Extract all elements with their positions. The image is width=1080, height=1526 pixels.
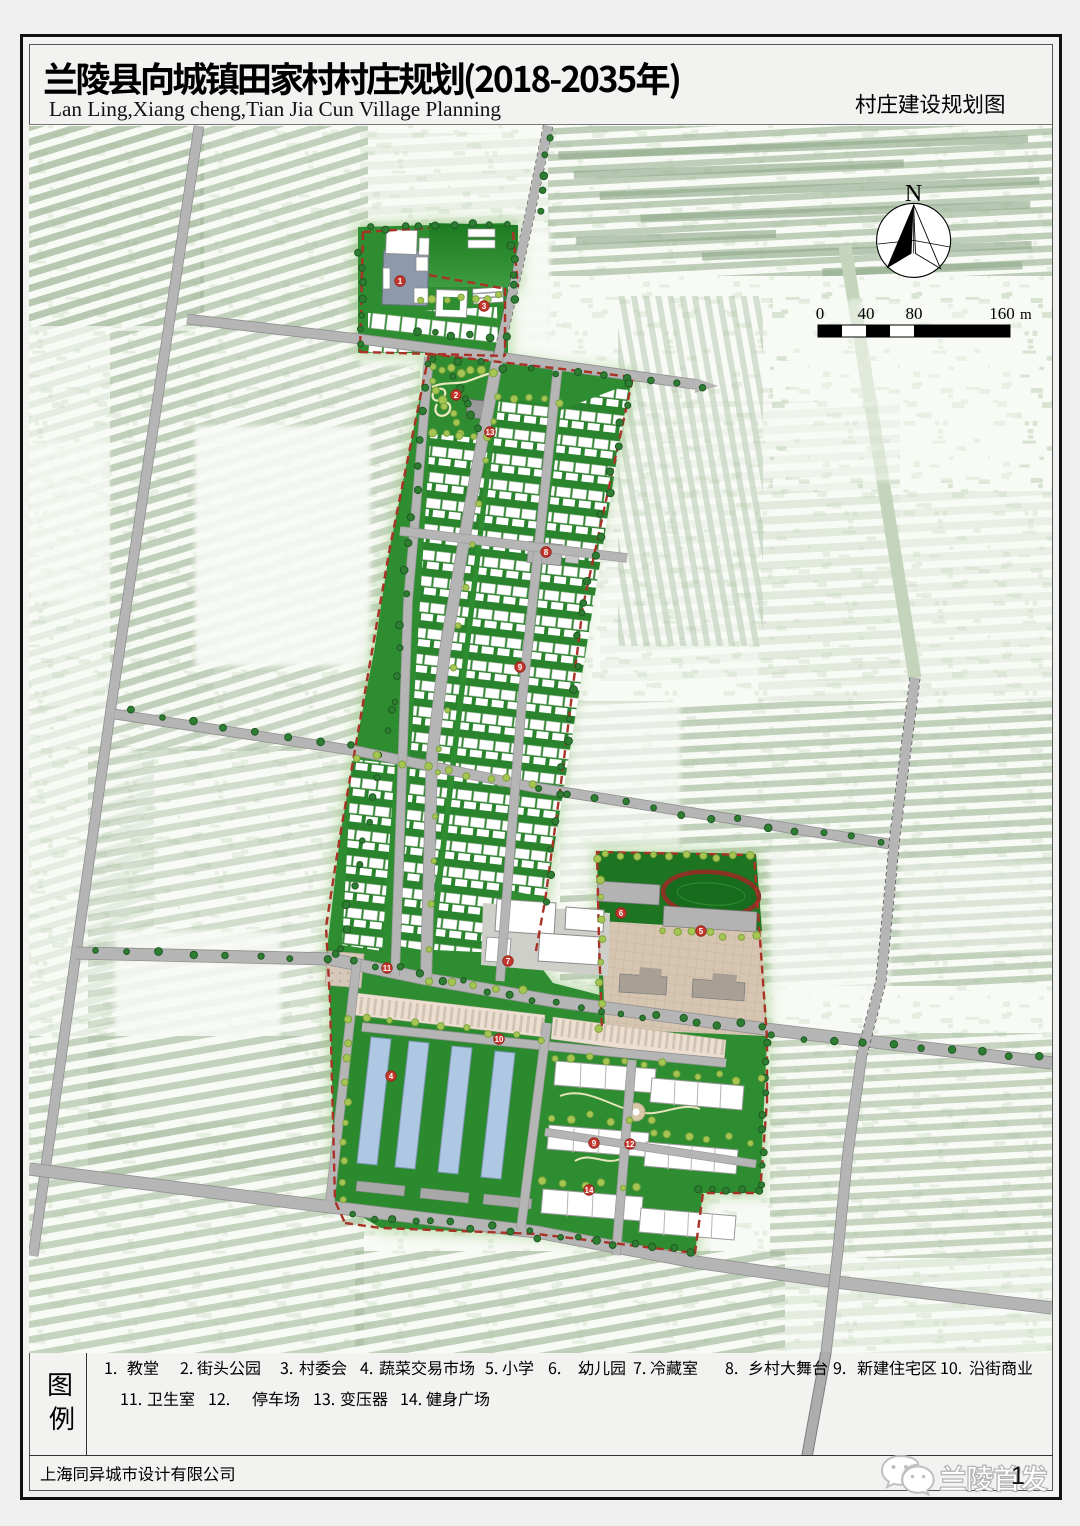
svg-text:1: 1 <box>1011 1462 1025 1490</box>
